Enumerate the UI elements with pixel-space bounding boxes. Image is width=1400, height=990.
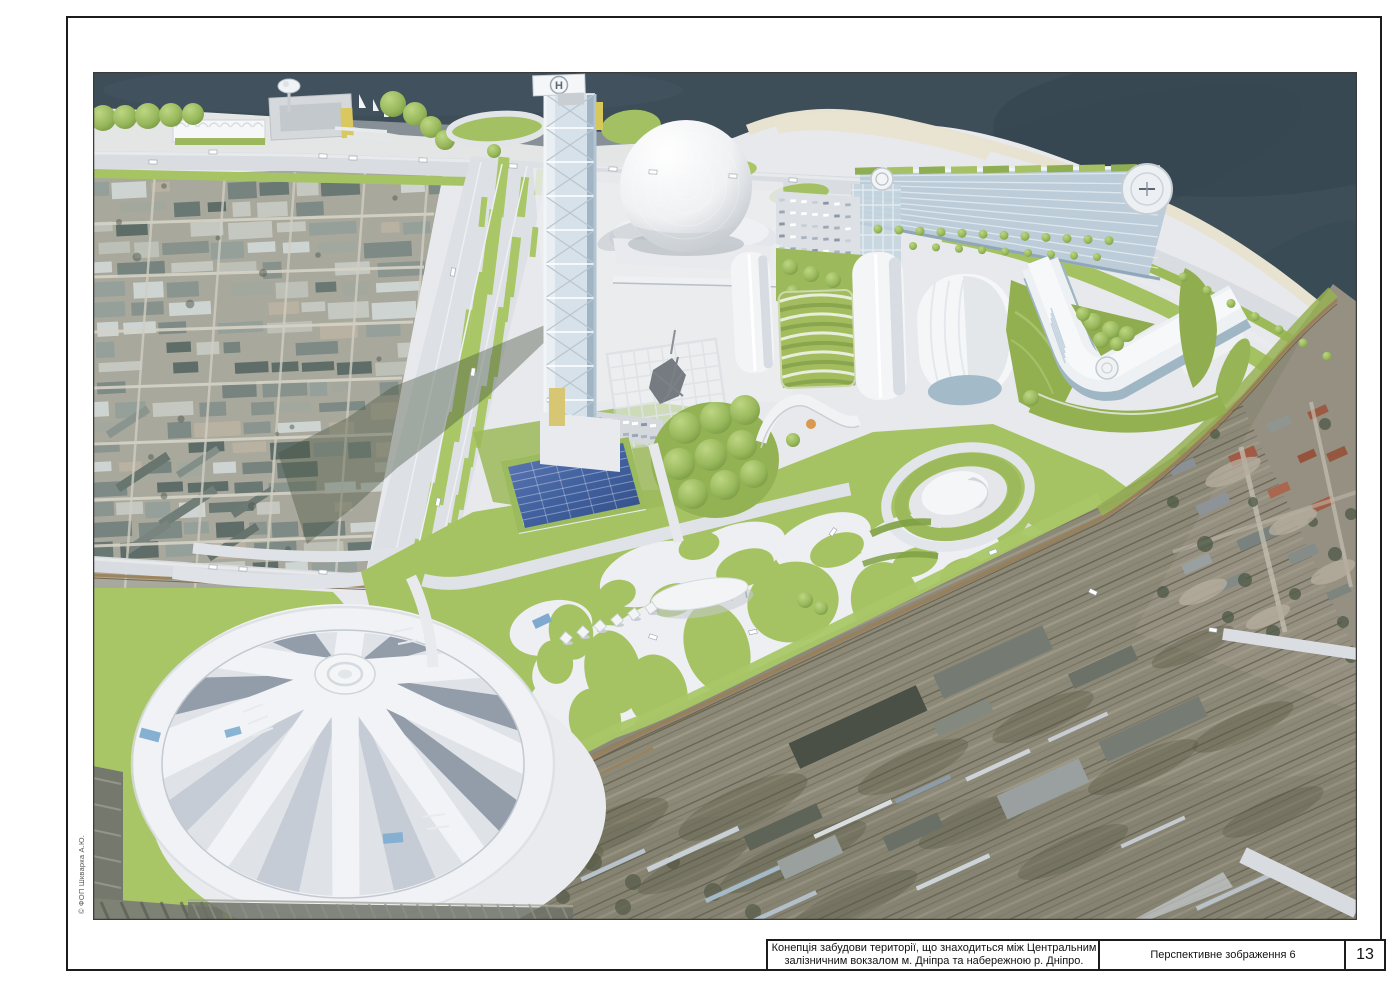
svg-text:H: H bbox=[555, 80, 563, 92]
